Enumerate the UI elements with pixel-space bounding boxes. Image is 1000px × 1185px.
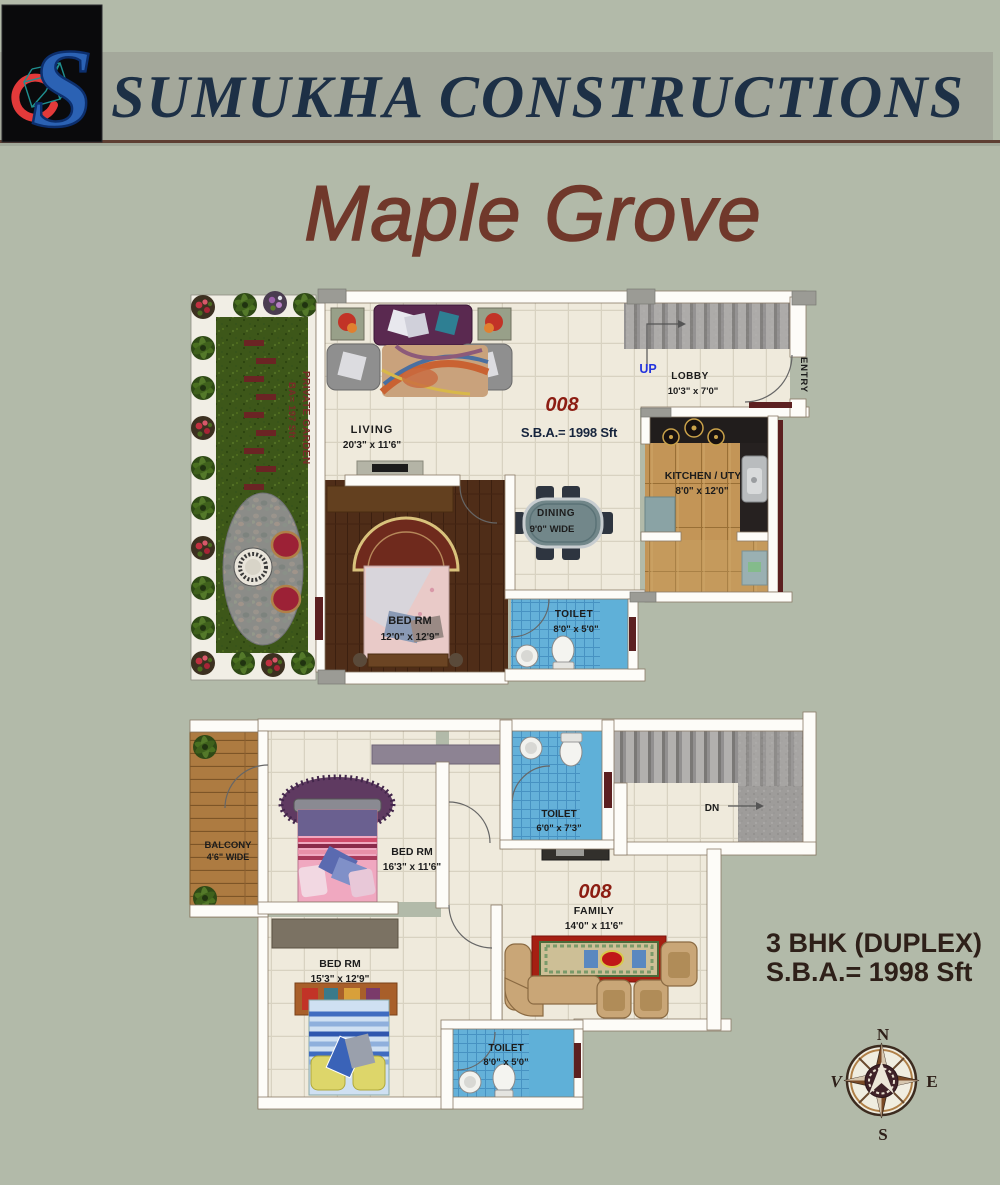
svg-text:E: E <box>926 1072 937 1091</box>
svg-text:Maple Grove: Maple Grove <box>304 169 762 257</box>
svg-text:TOILET: TOILET <box>555 609 593 620</box>
svg-text:15'3" x 12'9": 15'3" x 12'9" <box>311 974 370 985</box>
svg-text:TOILET: TOILET <box>541 809 576 820</box>
svg-text:6'0" x 7'3": 6'0" x 7'3" <box>536 823 581 834</box>
svg-text:8'0" x 5'0": 8'0" x 5'0" <box>483 1057 528 1068</box>
svg-text:9'0" WIDE: 9'0" WIDE <box>530 524 575 535</box>
svg-text:20'3" x 11'6": 20'3" x 11'6" <box>343 440 401 451</box>
svg-text:FAMILY: FAMILY <box>574 905 615 917</box>
svg-text:BED RM: BED RM <box>388 615 431 627</box>
svg-text:S: S <box>878 1125 887 1144</box>
svg-text:008: 008 <box>545 394 579 416</box>
svg-text:008: 008 <box>578 881 612 903</box>
svg-text:3 BHK (DUPLEX): 3 BHK (DUPLEX) <box>766 928 982 958</box>
svg-text:KITCHEN / UTY: KITCHEN / UTY <box>665 470 741 482</box>
svg-text:10'3" x 7'0": 10'3" x 7'0" <box>668 386 719 397</box>
svg-text:8'0" x 12'0": 8'0" x 12'0" <box>675 486 728 497</box>
svg-text:14'0" x 11'6": 14'0" x 11'6" <box>565 921 623 932</box>
svg-text:BA= 197 Sft: BA= 197 Sft <box>286 382 297 439</box>
svg-text:BALCONY: BALCONY <box>205 840 253 851</box>
svg-text:DN: DN <box>705 803 719 814</box>
svg-text:UP: UP <box>639 362 656 376</box>
svg-text:V: V <box>830 1072 843 1091</box>
svg-text:N: N <box>877 1025 890 1044</box>
svg-text:LOBBY: LOBBY <box>671 371 709 382</box>
svg-text:BED RM: BED RM <box>319 958 361 970</box>
svg-text:8'0" x 5'0": 8'0" x 5'0" <box>553 624 598 635</box>
svg-text:BED RM: BED RM <box>391 846 433 858</box>
svg-text:PRIVATE GARDEN: PRIVATE GARDEN <box>300 371 311 465</box>
svg-text:4'6" WIDE: 4'6" WIDE <box>207 852 249 862</box>
svg-text:S.B.A.= 1998 Sft: S.B.A.= 1998 Sft <box>521 425 618 440</box>
svg-text:S: S <box>31 27 93 151</box>
svg-text:TOILET: TOILET <box>488 1043 523 1054</box>
svg-text:SUMUKHA CONSTRUCTIONS: SUMUKHA CONSTRUCTIONS <box>111 64 965 130</box>
svg-text:12'0" x 12'9": 12'0" x 12'9" <box>381 632 440 643</box>
svg-text:ENTRY: ENTRY <box>798 357 809 393</box>
svg-text:16'3" x 11'6": 16'3" x 11'6" <box>383 862 441 873</box>
svg-text:S.B.A.= 1998 Sft: S.B.A.= 1998 Sft <box>766 957 972 987</box>
svg-text:LIVING: LIVING <box>351 424 394 436</box>
svg-text:DINING: DINING <box>537 508 575 519</box>
